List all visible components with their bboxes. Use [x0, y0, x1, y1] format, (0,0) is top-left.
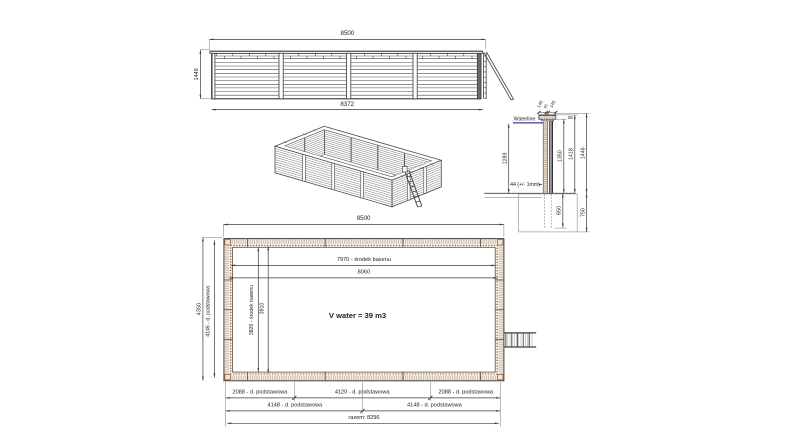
- svg-text:4146 - d. podstawowa: 4146 - d. podstawowa: [206, 286, 212, 337]
- svg-text:8500: 8500: [357, 215, 371, 222]
- svg-text:8060: 8060: [358, 269, 370, 275]
- svg-text:3910: 3910: [260, 303, 266, 315]
- svg-text:8372: 8372: [340, 101, 354, 108]
- svg-text:8500: 8500: [341, 30, 355, 37]
- svg-text:1446: 1446: [580, 147, 586, 159]
- svg-text:1283: 1283: [503, 152, 509, 164]
- svg-text:V water = 39 m3: V water = 39 m3: [329, 311, 386, 320]
- svg-text:44 (+/- 1mm): 44 (+/- 1mm): [510, 182, 540, 188]
- svg-text:2088 - d. podstawowa: 2088 - d. podstawowa: [233, 390, 289, 396]
- svg-text:3820 - środek basenu: 3820 - środek basenu: [249, 285, 255, 335]
- svg-text:Waterline: Waterline: [514, 117, 536, 123]
- svg-text:4148 - d. podstawowa: 4148 - d. podstawowa: [407, 403, 463, 409]
- svg-text:1418: 1418: [569, 148, 575, 160]
- svg-text:750: 750: [580, 208, 586, 217]
- svg-text:7970 - środek basenu: 7970 - środek basenu: [337, 257, 391, 263]
- svg-text:4148 - d. podstawowa: 4148 - d. podstawowa: [268, 403, 324, 409]
- svg-text:650: 650: [557, 206, 563, 215]
- svg-text:1446: 1446: [194, 68, 200, 80]
- svg-text:4350: 4350: [197, 303, 203, 315]
- svg-text:1350: 1350: [558, 150, 564, 162]
- svg-text:28: 28: [568, 115, 574, 121]
- svg-text:2088 - d. podstawowa: 2088 - d. podstawowa: [439, 390, 495, 396]
- svg-text:razem: 8296: razem: 8296: [348, 415, 379, 421]
